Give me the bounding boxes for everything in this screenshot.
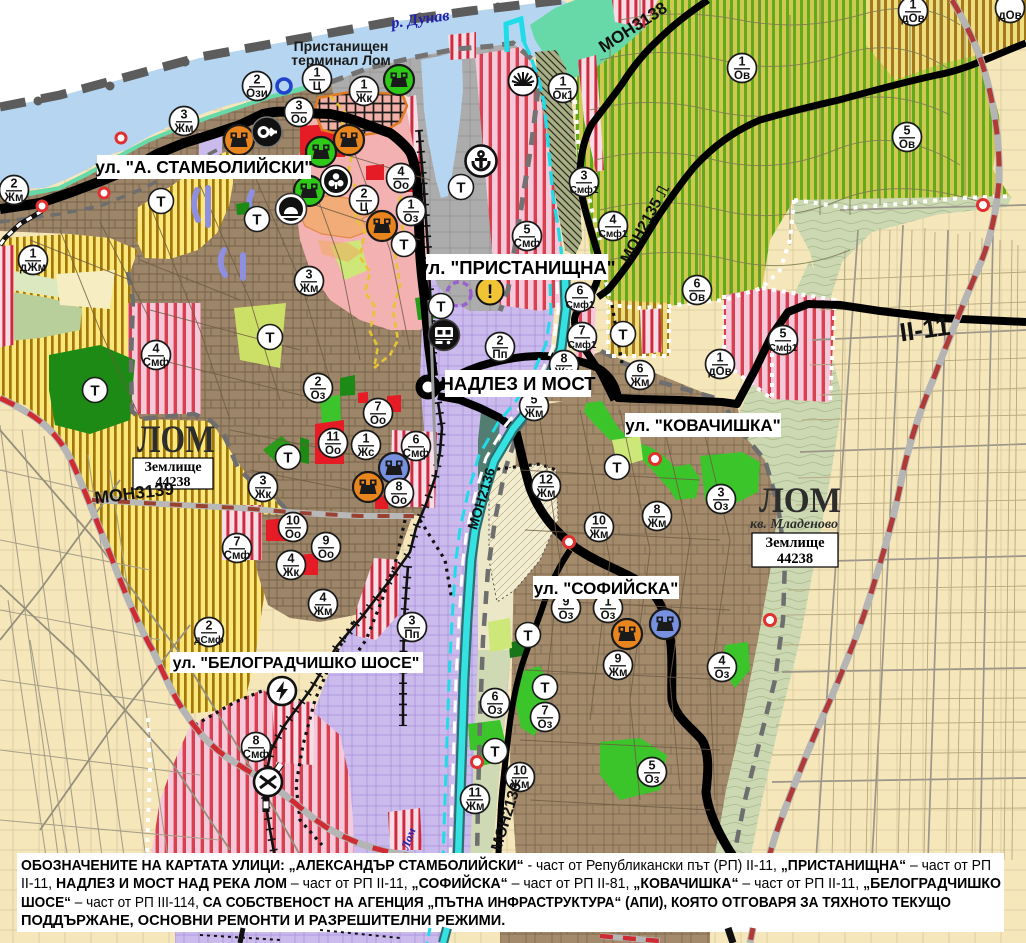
- svg-text:1: 1: [717, 351, 724, 365]
- svg-text:4: 4: [288, 552, 295, 566]
- svg-text:Ов: Ов: [689, 292, 705, 304]
- svg-text:8: 8: [561, 352, 568, 366]
- svg-text:Жк: Жк: [282, 567, 299, 579]
- svg-text:МОН2136: МОН2136: [488, 780, 525, 853]
- svg-text:Лом: Лом: [398, 826, 419, 852]
- svg-text:Жм: Жм: [313, 606, 333, 618]
- svg-text:Жм: Жм: [647, 518, 667, 530]
- svg-text:6: 6: [694, 277, 701, 291]
- svg-text:Оз: Оз: [715, 669, 730, 681]
- svg-text:Т: Т: [156, 194, 165, 211]
- svg-text:7: 7: [234, 535, 241, 549]
- svg-text:12: 12: [539, 473, 553, 487]
- svg-text:кв. Младеново: кв. Младеново: [750, 517, 838, 532]
- svg-text:Оз: Оз: [311, 390, 326, 402]
- svg-text:Жк: Жк: [254, 489, 271, 501]
- svg-text:Жм: Жм: [299, 283, 319, 295]
- svg-text:Оо: Оо: [391, 495, 407, 507]
- svg-text:2: 2: [11, 177, 18, 191]
- svg-text:1: 1: [910, 0, 917, 12]
- svg-text:5: 5: [780, 327, 787, 341]
- svg-text:6: 6: [577, 284, 584, 298]
- svg-text:10: 10: [286, 514, 300, 528]
- svg-text:3: 3: [409, 614, 416, 628]
- svg-text:7: 7: [375, 400, 382, 414]
- svg-text:Т: Т: [618, 327, 627, 344]
- svg-text:II-11, НАДЛЕЗ И МОСТ НАД РЕКА: II-11, НАДЛЕЗ И МОСТ НАД РЕКА ЛОМ – част…: [21, 874, 1001, 892]
- svg-text:Оз: Оз: [714, 501, 729, 513]
- svg-text:Жк: Жк: [355, 93, 372, 105]
- svg-text:Оо: Оо: [318, 549, 334, 561]
- svg-text:Оо: Оо: [291, 114, 307, 126]
- svg-text:Смф1: Смф1: [599, 228, 628, 240]
- svg-text:3: 3: [718, 486, 725, 500]
- svg-text:5: 5: [524, 223, 531, 237]
- svg-text:8: 8: [396, 480, 403, 494]
- svg-text:Т: Т: [399, 237, 408, 254]
- svg-text:8: 8: [253, 734, 260, 748]
- svg-text:Оо: Оо: [370, 415, 386, 427]
- svg-text:Оз: Оз: [601, 610, 616, 622]
- svg-text:3: 3: [181, 108, 188, 122]
- svg-text:Т: Т: [436, 299, 445, 316]
- svg-text:3: 3: [306, 268, 313, 282]
- svg-text:Смф: Смф: [243, 749, 270, 761]
- svg-text:2: 2: [254, 73, 261, 87]
- svg-text:5: 5: [904, 124, 911, 138]
- svg-text:ЛОМ: ЛОМ: [137, 418, 215, 461]
- svg-text:дОв: дОв: [708, 366, 731, 378]
- svg-text:Т: Т: [252, 212, 261, 229]
- svg-text:Жм: Жм: [630, 377, 650, 389]
- svg-text:4: 4: [153, 342, 160, 356]
- svg-text:Ок1: Ок1: [552, 90, 574, 102]
- svg-text:9: 9: [323, 534, 330, 548]
- svg-text:9: 9: [615, 652, 622, 666]
- svg-text:ПОДДЪРЖАНЕ, ОСНОВНИ РЕМОНТИ И: ПОДДЪРЖАНЕ, ОСНОВНИ РЕМОНТИ И РАЗРЕШИТЕЛ…: [21, 913, 505, 929]
- svg-text:Жм: Жм: [589, 529, 609, 541]
- svg-text:ул. "А. СТАМБОЛИЙСКИ": ул. "А. СТАМБОЛИЙСКИ": [95, 156, 312, 177]
- svg-text:1: 1: [363, 432, 370, 446]
- svg-text:ул. "КОВАЧИШКА": ул. "КОВАЧИШКА": [625, 416, 781, 435]
- svg-text:ШОСЕ“ – част от РП III-114, СА: ШОСЕ“ – част от РП III-114, СА СОБСТВЕНО…: [21, 895, 951, 911]
- svg-text:Оз: Оз: [559, 610, 574, 622]
- svg-text:Т: Т: [456, 180, 465, 197]
- svg-text:Смф: Смф: [143, 357, 170, 369]
- svg-text:Т: Т: [523, 628, 532, 645]
- svg-text:ул. "БЕЛОГРАДЧИШКО ШОСЕ": ул. "БЕЛОГРАДЧИШКО ШОСЕ": [173, 655, 420, 672]
- svg-text:3: 3: [581, 169, 588, 183]
- svg-text:ЛОМ: ЛОМ: [759, 480, 841, 520]
- svg-text:1: 1: [560, 75, 567, 89]
- svg-text:8: 8: [654, 503, 661, 517]
- svg-text:Оо: Оо: [325, 445, 341, 457]
- svg-text:дОв: дОв: [901, 13, 924, 25]
- svg-text:ул. "ПРИСТАНИЩНА": ул. "ПРИСТАНИЩНА": [418, 257, 615, 278]
- svg-text:Т: Т: [490, 744, 499, 761]
- svg-text:1: 1: [361, 78, 368, 92]
- svg-text:Т: Т: [283, 450, 292, 467]
- svg-text:4: 4: [719, 654, 726, 668]
- svg-text:Ов: Ов: [734, 70, 750, 82]
- svg-text:терминал Лом: терминал Лом: [291, 52, 391, 68]
- svg-text:6: 6: [637, 362, 644, 376]
- svg-text:Оз: Оз: [488, 705, 503, 717]
- svg-text:Жм: Жм: [608, 667, 628, 679]
- svg-text:4: 4: [398, 165, 405, 179]
- svg-text:Смф: Смф: [224, 550, 251, 562]
- svg-text:44238: 44238: [777, 551, 813, 567]
- svg-text:II-11: II-11: [898, 311, 952, 348]
- svg-text:МОН2136: МОН2136: [464, 465, 498, 531]
- svg-text:Ози: Ози: [246, 88, 268, 100]
- svg-text:Т: Т: [612, 460, 621, 477]
- svg-text:7: 7: [579, 324, 586, 338]
- svg-text:Ц: Ц: [360, 202, 369, 214]
- svg-text:1: 1: [739, 55, 746, 69]
- svg-text:6: 6: [492, 690, 499, 704]
- svg-text:Жс: Жс: [357, 447, 375, 459]
- svg-text:3: 3: [296, 99, 303, 113]
- svg-text:2: 2: [206, 619, 213, 633]
- svg-text:Землище: Землище: [765, 535, 825, 551]
- svg-text:Жм: Жм: [524, 408, 544, 420]
- svg-text:5: 5: [649, 759, 656, 773]
- svg-text:дОв: дОв: [998, 10, 1021, 22]
- svg-text:Смф: Смф: [514, 238, 541, 250]
- svg-text:дЖм: дЖм: [20, 262, 46, 274]
- svg-text:Землище: Землище: [144, 460, 201, 475]
- svg-text:ул. "СОФИЙСКА": ул. "СОФИЙСКА": [534, 579, 679, 598]
- svg-text:3: 3: [260, 474, 267, 488]
- svg-text:Жм: Жм: [536, 488, 556, 500]
- svg-text:6: 6: [413, 433, 420, 447]
- svg-text:Оо: Оо: [285, 529, 301, 541]
- svg-text:р. Дунав: р. Дунав: [388, 7, 450, 32]
- svg-text:2: 2: [497, 334, 504, 348]
- svg-text:MOH3138: MOH3138: [595, 0, 670, 56]
- svg-text:Т: Т: [90, 383, 99, 400]
- svg-text:НАДЛЕЗ И МОСТ: НАДЛЕЗ И МОСТ: [440, 373, 596, 394]
- svg-text:4: 4: [320, 591, 327, 605]
- svg-text:11: 11: [468, 786, 481, 800]
- svg-text:Смф1: Смф1: [568, 339, 597, 351]
- svg-text:Оз: Оз: [404, 213, 419, 225]
- svg-text:Ов: Ов: [899, 139, 915, 151]
- svg-text:Смф1: Смф1: [769, 342, 798, 354]
- svg-text:дСмф: дСмф: [194, 634, 224, 646]
- svg-text:2: 2: [315, 375, 322, 389]
- svg-text:10: 10: [513, 764, 527, 778]
- svg-text:ОБОЗНАЧЕНИТЕ НА КАРТАТА УЛИЦИ:: ОБОЗНАЧЕНИТЕ НА КАРТАТА УЛИЦИ: „АЛЕКСАНД…: [21, 856, 991, 874]
- svg-text:4: 4: [610, 213, 617, 227]
- svg-text:Т: Т: [540, 680, 549, 697]
- svg-text:10: 10: [592, 514, 606, 528]
- svg-text:Пп: Пп: [492, 349, 507, 361]
- svg-text:Оз: Оз: [538, 719, 553, 731]
- svg-text:Т: Т: [265, 330, 274, 347]
- svg-text:1: 1: [30, 247, 37, 261]
- svg-text:Смф: Смф: [403, 448, 430, 460]
- svg-text:Жм: Жм: [4, 192, 24, 204]
- svg-text:Ц: Ц: [313, 81, 322, 93]
- svg-text:7: 7: [542, 704, 549, 718]
- svg-text:11: 11: [326, 430, 339, 444]
- svg-text:Жм: Жм: [465, 801, 485, 813]
- svg-text:Смф1: Смф1: [566, 299, 595, 311]
- svg-text:Жм: Жм: [174, 123, 194, 135]
- svg-text:Оз: Оз: [645, 774, 660, 786]
- svg-text:Оо: Оо: [393, 180, 409, 192]
- svg-text:Пп: Пп: [404, 629, 419, 641]
- svg-text:2: 2: [361, 187, 368, 201]
- svg-text:МОН3139: МОН3139: [93, 478, 175, 508]
- svg-text:Смф1: Смф1: [570, 184, 599, 196]
- svg-text:1: 1: [408, 198, 415, 212]
